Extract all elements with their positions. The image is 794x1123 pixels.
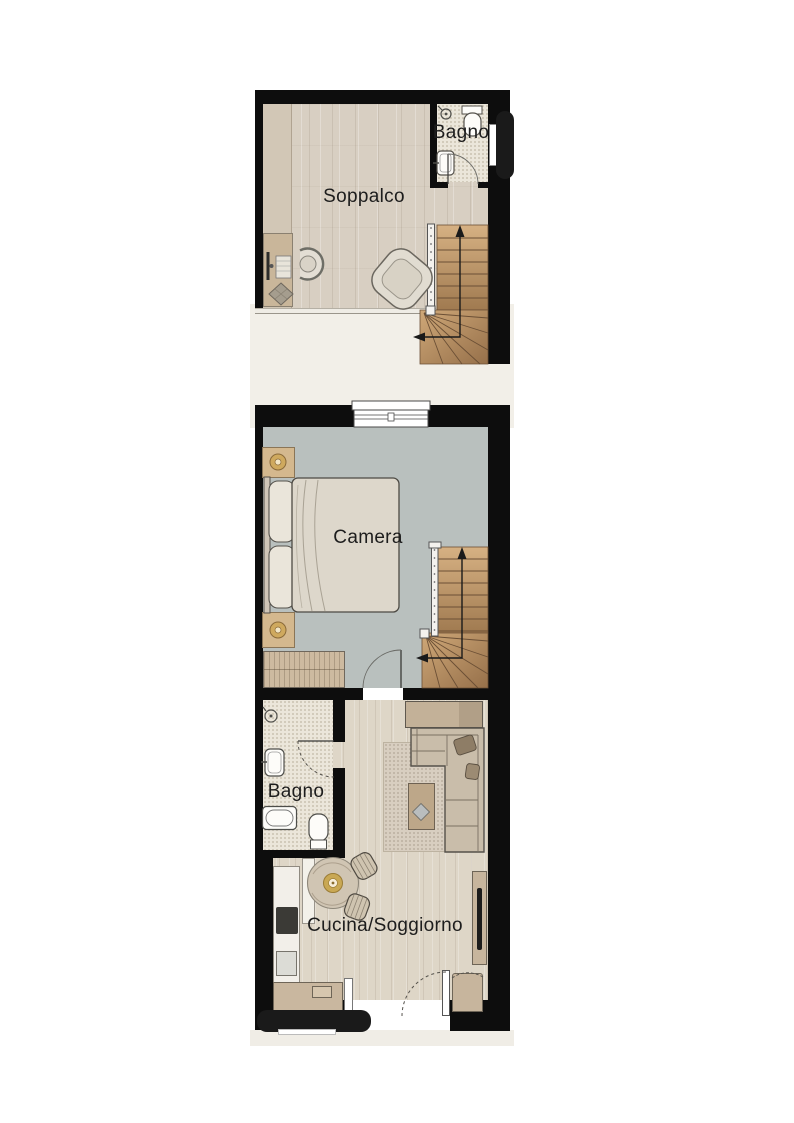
room-label-cucina-soggiorno: Cucina/Soggiorno xyxy=(307,915,463,937)
sofa xyxy=(411,728,484,852)
bagno-lower-fixtures xyxy=(261,707,334,849)
entry-cabinet-curve xyxy=(452,973,483,978)
pillow xyxy=(269,546,295,608)
stairs-camera xyxy=(420,542,488,688)
entrance-door xyxy=(402,972,446,1016)
stairs-upper xyxy=(420,224,488,364)
coffee-table-tray xyxy=(413,804,430,821)
camera-window xyxy=(352,401,430,427)
room-label-camera: Camera xyxy=(333,527,402,549)
room-label-bagno-top: Bagno xyxy=(433,122,489,144)
room-label-soppalco: Soppalco xyxy=(323,186,405,208)
bagno-lower-door-arc xyxy=(298,741,334,777)
plan-linework xyxy=(0,0,794,1123)
toilet-tank-icon xyxy=(311,840,327,849)
bagno-top-fixtures xyxy=(433,106,482,184)
desk-detail xyxy=(267,252,292,280)
room-label-bagno-lower: Bagno xyxy=(268,781,324,803)
monitor-icon xyxy=(267,252,270,280)
keyboard-icon xyxy=(276,256,291,278)
pillow xyxy=(269,481,295,542)
toilet-bowl-icon xyxy=(309,814,328,841)
office-chair xyxy=(300,249,323,280)
camera-door xyxy=(363,650,401,688)
floorplan-canvas: Soppalco Bagno Camera Bagno Cucina/Soggi… xyxy=(0,0,794,1123)
floor-diamond-decor xyxy=(269,283,293,305)
sofa-pillow xyxy=(465,763,480,780)
